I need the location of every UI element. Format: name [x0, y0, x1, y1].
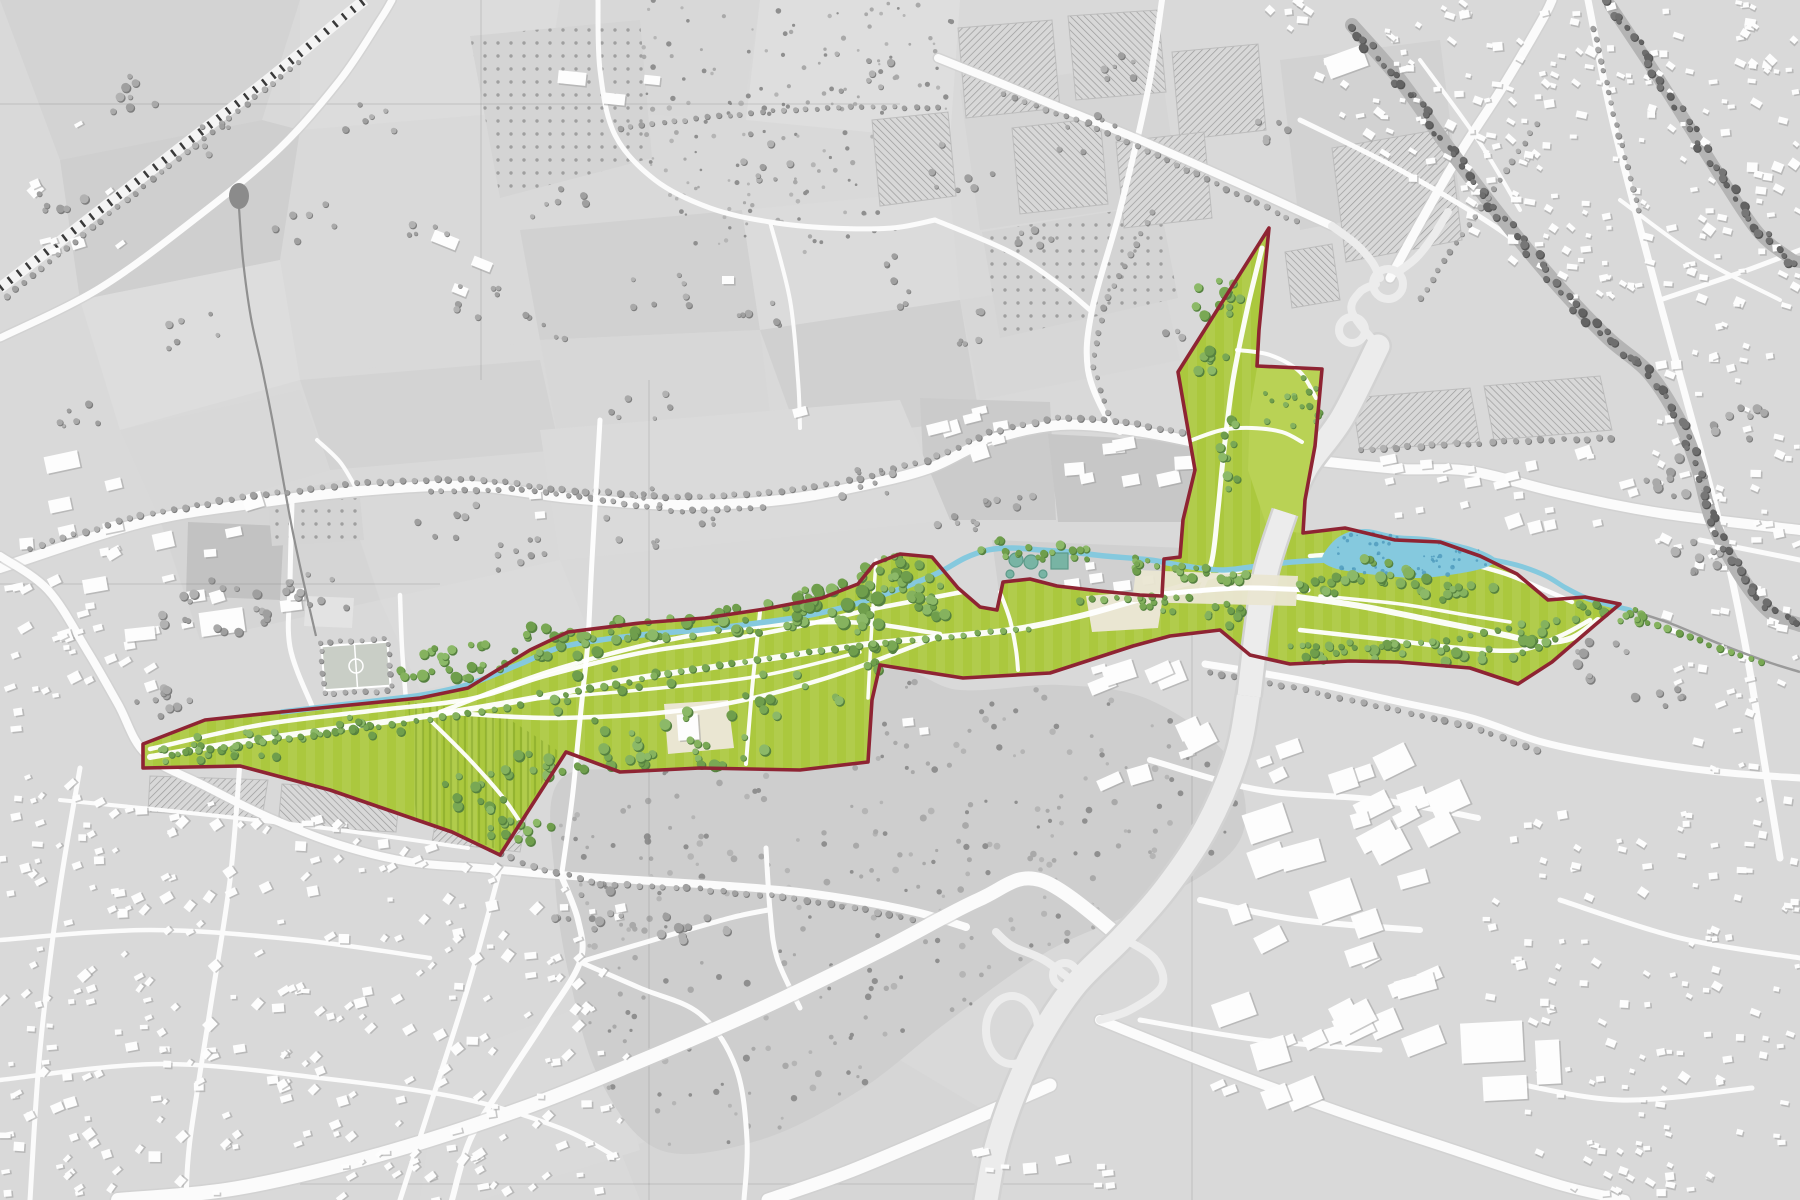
tree-icon: [551, 914, 558, 921]
building-roof: [1542, 142, 1550, 149]
tree-icon: [1077, 415, 1084, 422]
tree-icon: [348, 638, 353, 643]
tree-icon: [1441, 258, 1446, 263]
tree-icon: [705, 114, 710, 119]
woodland-tree-icon: [572, 817, 577, 822]
woodland-tree-icon: [761, 796, 767, 802]
tree-icon: [1408, 711, 1414, 717]
tree-icon: [1606, 90, 1611, 95]
building-roof: [27, 1026, 35, 1032]
woodland-tree-icon: [897, 7, 900, 10]
building-roof: [1733, 302, 1740, 307]
woodland-tree-icon: [667, 870, 673, 876]
building-roof: [1524, 939, 1532, 946]
building-roof: [466, 1037, 478, 1045]
tree-icon: [1573, 436, 1579, 442]
tree-icon: [72, 239, 77, 244]
tree-icon: [803, 106, 808, 111]
tree-icon: [1094, 126, 1099, 131]
tree-icon: [892, 104, 896, 108]
woodland-tree-icon: [883, 1032, 888, 1037]
woodland-tree-icon: [833, 1041, 837, 1045]
tree-icon: [132, 79, 140, 87]
tree-icon: [318, 641, 323, 646]
building-roof: [1513, 491, 1523, 499]
building-roof: [1720, 129, 1730, 137]
tree-icon: [278, 74, 283, 79]
woodland-tree-icon: [931, 766, 938, 773]
tree-icon: [680, 509, 685, 514]
woodland-tree-icon: [905, 686, 908, 689]
woodland-tree-icon: [883, 831, 888, 836]
tree-icon: [89, 224, 95, 230]
woodland-tree-icon: [903, 14, 906, 17]
woodland-tree-icon: [647, 8, 650, 11]
building-roof: [306, 885, 318, 896]
tree-icon: [1527, 130, 1532, 135]
woodland-tree-icon: [1020, 749, 1025, 754]
woodland-tree-icon: [686, 181, 689, 184]
tree-icon: [1467, 222, 1472, 227]
building-roof: [1708, 872, 1717, 879]
building-roof: [1736, 1034, 1744, 1041]
building-roof: [1783, 606, 1791, 613]
woodland-tree-icon: [657, 1092, 661, 1096]
woodland-tree-icon: [1049, 729, 1055, 735]
tree-icon: [1065, 415, 1071, 421]
woodland-tree-icon: [657, 891, 661, 895]
building-roof: [380, 1149, 390, 1154]
tree-icon: [1095, 330, 1100, 335]
woodland-tree-icon: [632, 955, 638, 961]
tree-icon: [1522, 141, 1527, 146]
tree-icon: [150, 175, 156, 181]
tree-icon: [208, 312, 212, 316]
woodland-tree-icon: [735, 180, 740, 185]
woodland-tree-icon: [865, 994, 872, 1001]
woodland-tree-icon: [668, 826, 672, 830]
woodland-tree-icon: [669, 139, 674, 144]
building-roof: [1460, 185, 1468, 191]
hatched-plot: [1484, 376, 1612, 440]
tree-icon: [409, 221, 416, 228]
building-roof: [1601, 1190, 1610, 1196]
woodland-tree-icon: [1046, 809, 1050, 813]
tree-icon: [1417, 443, 1424, 450]
woodland-tree-icon: [796, 905, 801, 910]
tree-icon: [873, 481, 877, 485]
tree-icon: [1122, 419, 1128, 425]
tree-icon: [1089, 415, 1095, 421]
tree-icon: [270, 81, 275, 86]
woodland-tree-icon: [650, 64, 656, 70]
woodland-tree-icon: [810, 1085, 817, 1092]
tree-icon: [1102, 398, 1107, 403]
woodland-tree-icon: [670, 54, 674, 58]
tree-icon: [773, 177, 777, 181]
tree-icon: [507, 854, 514, 861]
building-roof: [1580, 246, 1591, 253]
tree-icon: [357, 102, 362, 107]
tree-icon: [414, 232, 418, 236]
tree-icon: [185, 618, 190, 623]
tree-icon: [400, 478, 406, 484]
building-roof: [212, 1191, 219, 1195]
tree-icon: [57, 419, 63, 425]
building-roof: [1722, 99, 1728, 104]
woodland-tree-icon: [656, 896, 661, 901]
building-roof: [1524, 822, 1532, 828]
tree-icon: [194, 502, 199, 507]
woodland-tree-icon: [1083, 776, 1087, 780]
tree-icon: [856, 475, 863, 482]
woodland-tree-icon: [759, 87, 763, 91]
building: [362, 986, 375, 998]
tree-icon: [67, 409, 71, 413]
building-roof: [1705, 936, 1710, 940]
building-roof: [644, 75, 661, 86]
tree-icon: [305, 572, 310, 577]
woodland-tree-icon: [670, 96, 675, 101]
tree-icon: [1244, 195, 1251, 202]
tree-icon: [158, 611, 166, 619]
tree-icon: [704, 914, 711, 921]
tree-icon: [1144, 148, 1149, 153]
tree-icon: [44, 203, 50, 209]
building-roof: [62, 1073, 72, 1081]
tree-icon: [608, 409, 614, 415]
woodland-tree-icon: [1106, 762, 1109, 765]
tree-icon: [94, 526, 100, 532]
tree-icon: [382, 636, 386, 640]
tree-icon: [1267, 680, 1272, 685]
woodland-tree-icon: [642, 55, 647, 60]
building-roof: [1394, 62, 1399, 66]
woodland-tree-icon: [1056, 913, 1061, 918]
tree-icon: [914, 104, 919, 109]
woodland-tree-icon: [559, 824, 563, 828]
woodland-tree-icon: [829, 87, 834, 92]
tree-icon: [1013, 503, 1020, 510]
tree-icon: [56, 205, 64, 213]
tree-icon: [1017, 495, 1022, 500]
tree-icon: [748, 505, 753, 510]
building-roof: [589, 909, 596, 915]
building-roof: [1557, 1093, 1565, 1098]
building: [1566, 264, 1579, 272]
tree-icon: [1480, 192, 1486, 198]
tree-icon: [1558, 290, 1563, 295]
woodland-tree-icon: [700, 169, 703, 172]
tree-icon: [555, 199, 561, 205]
tree-icon: [848, 104, 853, 109]
tree-icon: [126, 103, 134, 111]
tree-icon: [1690, 539, 1696, 545]
tree-icon: [655, 538, 659, 542]
woodland-tree-icon: [697, 840, 704, 847]
woodland-tree-icon: [809, 1050, 813, 1054]
tree-icon: [802, 485, 807, 490]
building-roof: [1663, 281, 1672, 286]
tree-icon: [1703, 486, 1710, 493]
woodland-tree-icon: [787, 84, 791, 88]
building: [1656, 1189, 1667, 1198]
tree-icon: [85, 401, 92, 408]
woodland-tree-icon: [926, 761, 930, 765]
woodland-tree-icon: [985, 870, 990, 875]
woodland-tree-icon: [711, 134, 716, 139]
woodland-tree-icon: [878, 63, 880, 65]
tree-icon: [1645, 372, 1651, 378]
tree-icon: [1031, 226, 1038, 233]
woodland-tree-icon: [846, 1070, 851, 1075]
woodland-tree-icon: [818, 62, 821, 65]
tree-icon: [491, 286, 496, 291]
tree-icon: [1441, 442, 1447, 448]
tree-icon: [387, 652, 392, 657]
tree-icon: [1489, 439, 1496, 446]
tree-icon: [667, 404, 673, 410]
woodland-tree-icon: [922, 862, 926, 866]
woodland-tree-icon: [945, 108, 947, 110]
woodland-tree-icon: [742, 133, 745, 136]
tree-icon: [1435, 268, 1440, 273]
building: [1697, 664, 1709, 675]
tree-icon: [71, 531, 76, 536]
woodland-tree-icon: [1054, 724, 1060, 730]
tree-icon: [331, 691, 336, 696]
woodland-tree-icon: [876, 756, 881, 761]
building-roof: [1578, 258, 1584, 262]
tree-icon: [1725, 412, 1733, 420]
tree-icon: [1473, 214, 1478, 219]
building-roof: [535, 511, 546, 519]
tree-icon: [1636, 208, 1641, 213]
woodland-tree-icon: [627, 805, 631, 809]
building-roof: [449, 995, 456, 999]
woodland-tree-icon: [785, 868, 790, 873]
building-roof: [1790, 899, 1798, 905]
tree-icon: [407, 232, 412, 237]
woodland-tree-icon: [668, 193, 672, 197]
woodland-tree-icon: [621, 937, 624, 940]
woodland-tree-icon: [687, 853, 694, 860]
woodland-tree-icon: [1064, 938, 1070, 944]
tree-icon: [166, 346, 171, 351]
woodland-tree-icon: [822, 185, 826, 189]
tree-icon: [617, 490, 624, 497]
building-roof: [0, 1133, 11, 1139]
tree-icon: [1134, 420, 1140, 426]
tree-icon: [1537, 436, 1544, 443]
tree-icon: [1105, 294, 1111, 300]
tree-icon: [906, 289, 910, 293]
woodland-tree-icon: [1043, 896, 1047, 900]
building-roof: [1627, 79, 1633, 83]
woodland-tree-icon: [817, 169, 821, 173]
tree-icon: [928, 169, 935, 176]
tree-icon: [889, 470, 896, 477]
tree-icon: [60, 535, 66, 541]
tree-icon: [124, 197, 130, 203]
tree-icon: [263, 491, 269, 497]
tree-icon: [815, 107, 819, 111]
building-roof: [1659, 50, 1667, 57]
woodland-tree-icon: [1204, 762, 1210, 768]
tree-icon: [1145, 423, 1151, 429]
woodland-tree-icon: [1039, 857, 1044, 862]
tree-icon: [1460, 157, 1467, 164]
tree-icon: [1493, 214, 1500, 221]
woodland-tree-icon: [763, 130, 766, 133]
woodland-tree-icon: [850, 1033, 854, 1037]
tree-icon: [723, 927, 731, 935]
tree-icon: [1283, 215, 1288, 220]
hatched-plot: [1285, 244, 1340, 308]
tree-icon: [107, 211, 111, 215]
tree-icon: [115, 204, 120, 209]
woodland-tree-icon: [933, 43, 936, 46]
tree-icon: [825, 105, 830, 110]
tree-icon: [1431, 131, 1436, 136]
tree-icon: [610, 498, 615, 503]
building-roof: [1579, 980, 1587, 986]
woodland-tree-icon: [680, 6, 683, 9]
tree-icon: [152, 101, 159, 108]
tree-icon: [662, 391, 668, 397]
woodland-tree-icon: [991, 724, 997, 730]
building-roof: [358, 868, 364, 873]
woodland-tree-icon: [894, 74, 899, 79]
tree-icon: [902, 106, 907, 111]
woodland-tree-icon: [641, 927, 647, 933]
woodland-tree-icon: [579, 883, 583, 887]
tree-icon: [724, 505, 730, 511]
woodland-tree-icon: [792, 24, 795, 27]
woodland-tree-icon: [918, 83, 922, 87]
tree-icon: [331, 483, 337, 489]
woodland-tree-icon: [781, 1117, 784, 1120]
woodland-tree-icon: [796, 838, 800, 842]
tree-icon: [1419, 713, 1424, 718]
building-roof: [1735, 378, 1741, 383]
tree-icon: [791, 895, 796, 900]
tree-icon: [760, 504, 766, 510]
tree-icon: [362, 118, 368, 124]
building-roof: [1643, 1146, 1650, 1151]
tree-icon: [159, 169, 164, 174]
woodland-tree-icon: [852, 765, 858, 771]
woodland-tree-icon: [823, 149, 826, 152]
tree-icon: [838, 492, 846, 500]
building-roof: [1785, 456, 1792, 461]
building-roof: [1745, 868, 1752, 873]
tree-icon: [438, 488, 443, 493]
tree-icon: [509, 485, 515, 491]
woodland-tree-icon: [947, 763, 952, 768]
woodland-tree-icon: [970, 936, 974, 940]
tree-icon: [250, 492, 257, 499]
woodland-tree-icon: [1152, 847, 1158, 853]
tree-icon: [327, 639, 333, 645]
tree-icon: [1395, 707, 1401, 713]
woodland-tree-icon: [650, 164, 652, 166]
tree-icon: [554, 335, 558, 339]
tree-icon: [216, 333, 220, 337]
tree-icon: [1695, 553, 1703, 561]
tree-icon: [1043, 416, 1050, 423]
building-roof: [985, 1167, 994, 1172]
woodland-tree-icon: [618, 967, 621, 970]
woodland-tree-icon: [821, 841, 827, 847]
tree-icon: [1454, 720, 1461, 727]
tree-icon: [836, 105, 841, 110]
woodland-tree-icon: [1108, 698, 1114, 704]
tree-icon: [633, 494, 637, 498]
woodland-tree-icon: [1029, 943, 1033, 947]
tree-icon: [542, 323, 546, 327]
building-roof: [42, 1060, 50, 1065]
tree-icon: [566, 493, 571, 498]
tree-icon: [697, 494, 702, 499]
tree-icon: [1157, 426, 1163, 432]
tree-icon: [756, 173, 761, 178]
woodland-tree-icon: [893, 741, 897, 745]
woodland-tree-icon: [899, 975, 903, 979]
woodland-tree-icon: [824, 879, 831, 886]
woodland-tree-icon: [875, 933, 880, 938]
tree-icon: [939, 142, 945, 148]
tree-icon: [110, 108, 116, 114]
woodland-tree-icon: [650, 107, 655, 112]
tree-icon: [716, 113, 722, 119]
tree-icon: [1349, 697, 1354, 702]
building-roof: [1572, 11, 1580, 16]
building-roof: [1535, 242, 1544, 247]
woodland-tree-icon: [667, 105, 672, 110]
tree-icon: [376, 479, 383, 486]
woodland-tree-icon: [696, 863, 699, 866]
tree-icon: [625, 395, 632, 402]
tree-icon: [789, 486, 795, 492]
woodland-tree-icon: [935, 959, 940, 964]
woodland-tree-icon: [693, 241, 698, 246]
tree-icon: [496, 487, 501, 492]
building: [1758, 830, 1769, 840]
tree-icon: [1658, 385, 1667, 394]
tree-icon: [1098, 387, 1103, 392]
tree-icon: [63, 206, 70, 213]
tree-icon: [522, 312, 528, 318]
tree-icon: [1428, 441, 1434, 447]
tree-icon: [95, 421, 100, 426]
building-roof: [1482, 1075, 1527, 1101]
tree-icon: [239, 494, 245, 500]
tree-icon: [294, 238, 301, 245]
tree-icon: [1645, 364, 1653, 372]
building-roof: [1415, 507, 1423, 514]
tree-icon: [1183, 167, 1189, 173]
tree-icon: [165, 704, 173, 712]
tree-icon: [1276, 120, 1281, 125]
tree-icon: [1029, 493, 1036, 500]
building-roof: [1596, 80, 1602, 85]
building-roof: [1284, 8, 1292, 15]
woodland-tree-icon: [908, 43, 911, 46]
building-roof: [1484, 153, 1491, 159]
building: [1671, 360, 1684, 371]
building-roof: [1570, 134, 1577, 138]
